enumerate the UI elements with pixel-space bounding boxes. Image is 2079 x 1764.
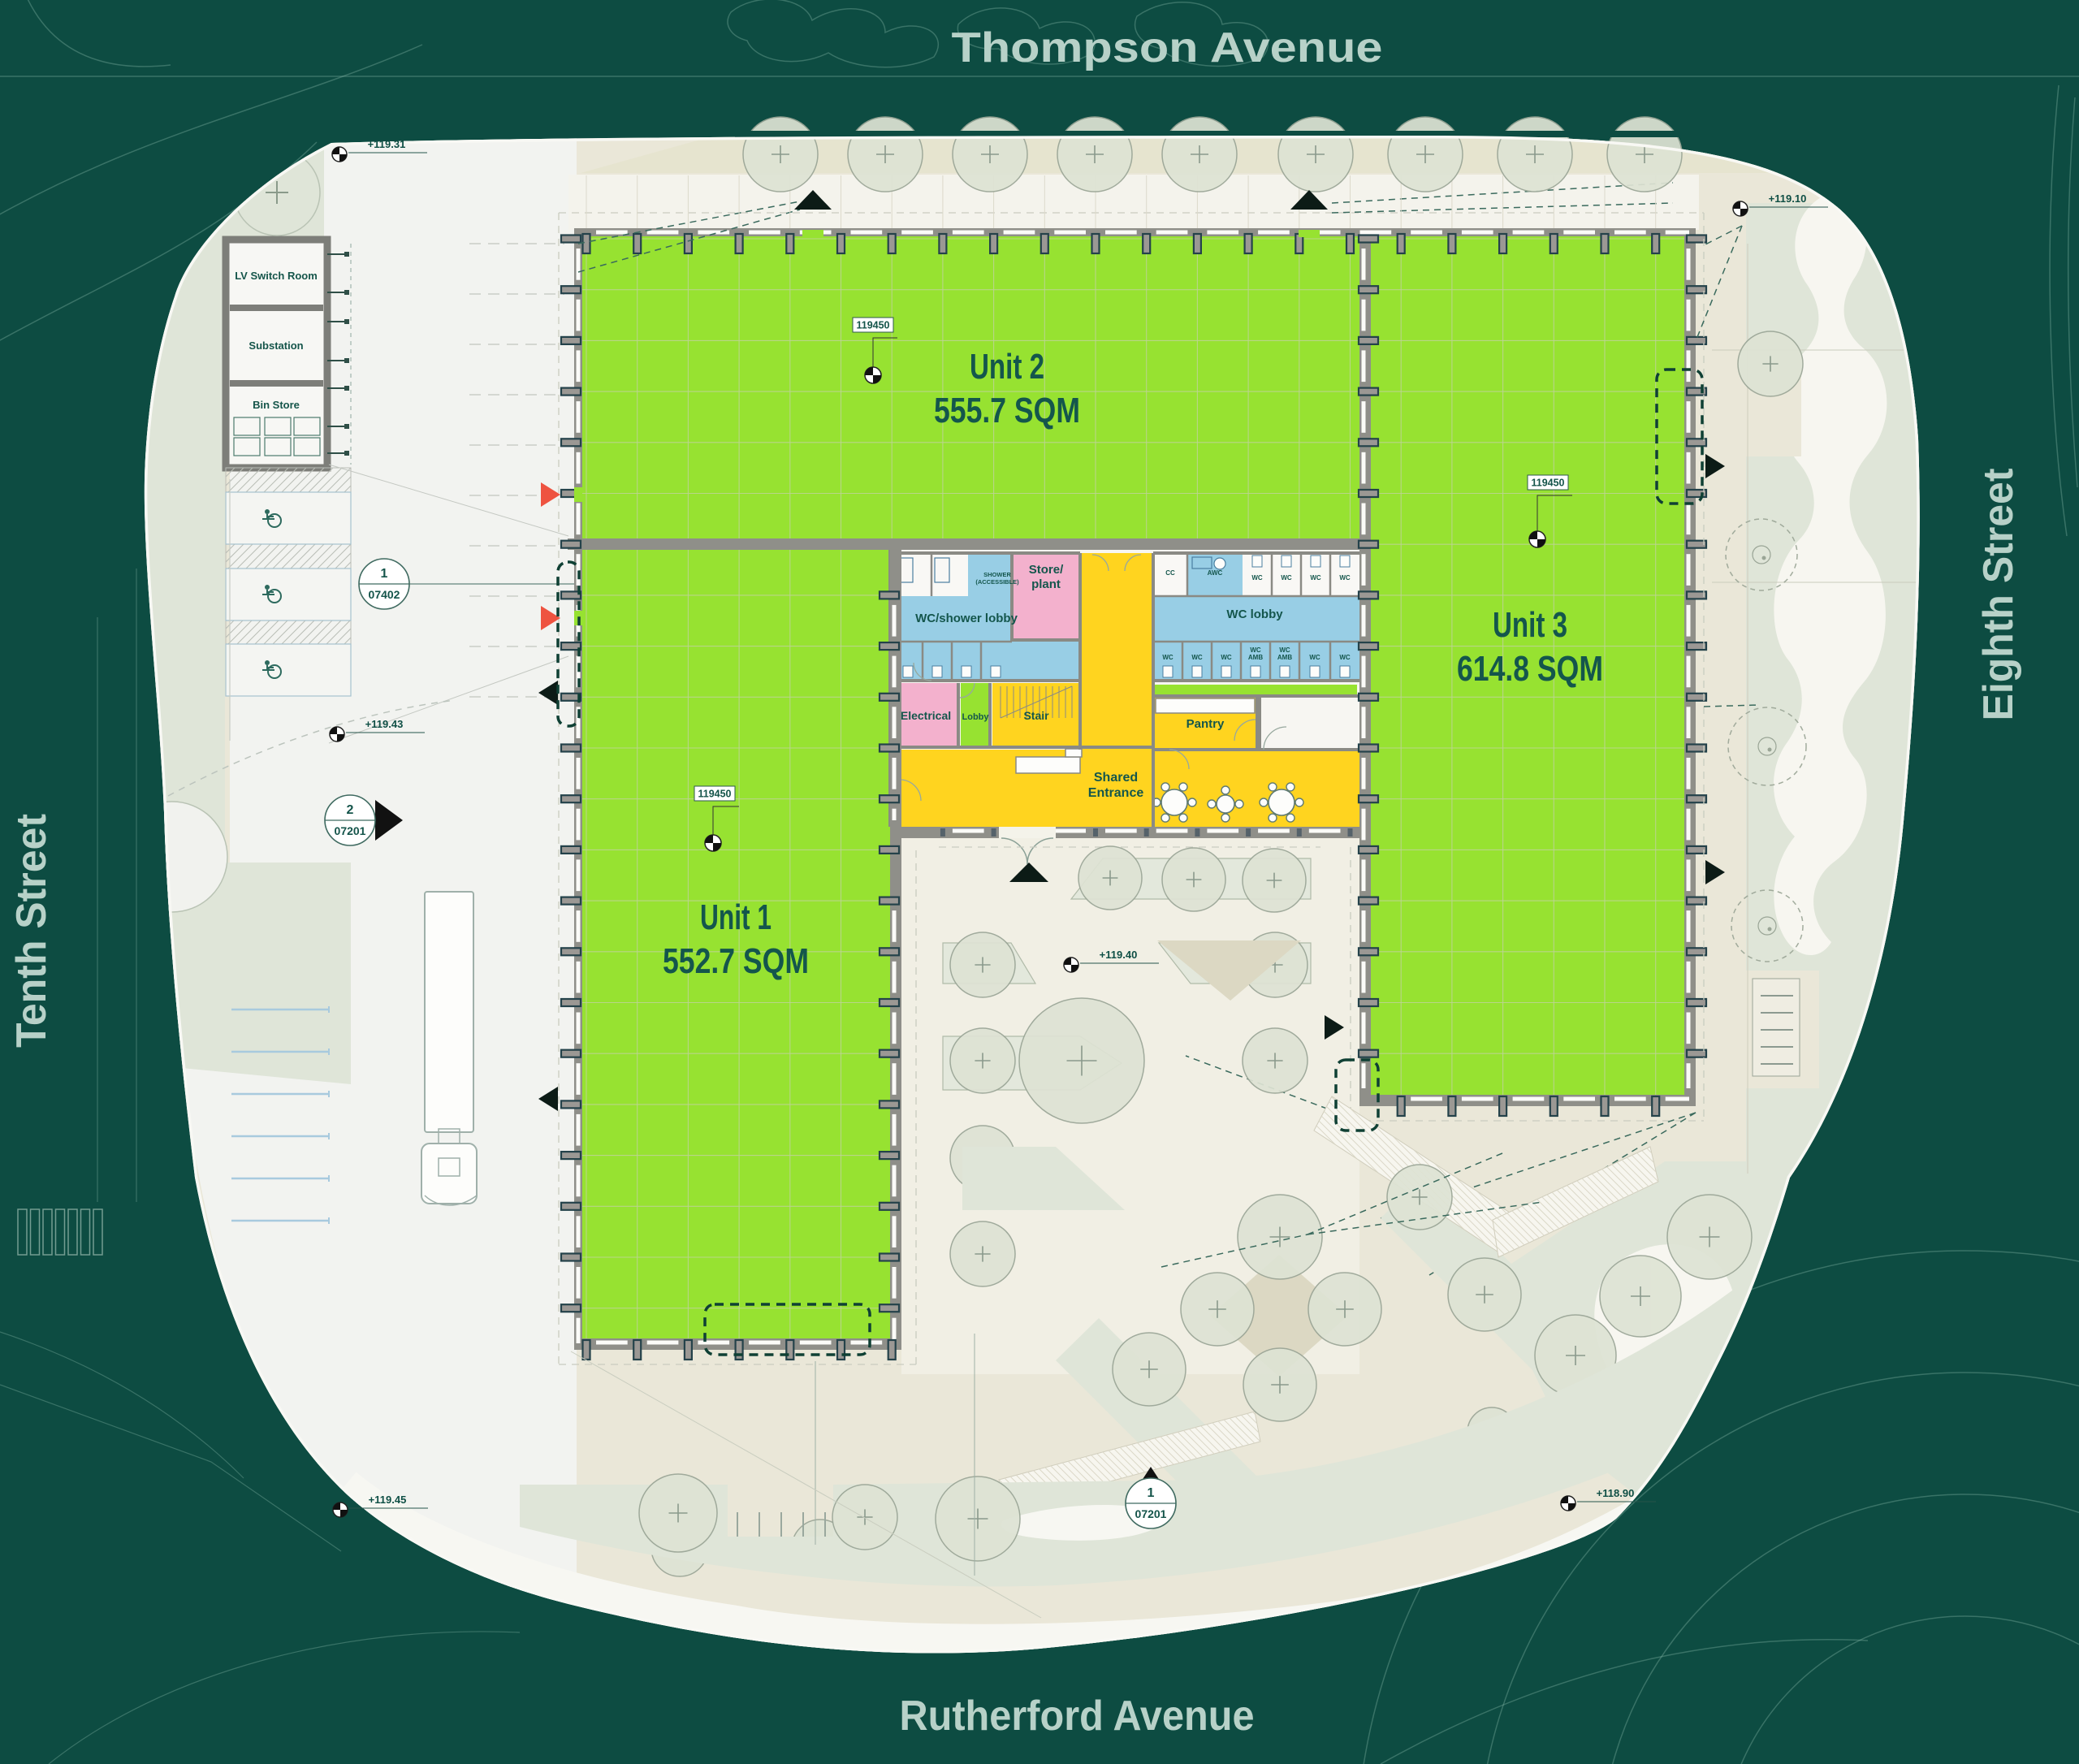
svg-text:WC/shower lobby: WC/shower lobby bbox=[915, 612, 1018, 625]
svg-text:Unit 2: Unit 2 bbox=[970, 347, 1044, 387]
svg-text:Pantry: Pantry bbox=[1186, 717, 1225, 731]
svg-text:Bin Store: Bin Store bbox=[253, 399, 300, 411]
svg-text:Shared: Shared bbox=[1094, 771, 1138, 785]
svg-text:07402: 07402 bbox=[369, 588, 400, 601]
svg-text:WC lobby: WC lobby bbox=[1226, 607, 1283, 621]
svg-text:AWC: AWC bbox=[1208, 569, 1223, 577]
svg-text:Eighth Street: Eighth Street bbox=[1975, 469, 2022, 721]
svg-text:552.7 SQM: 552.7 SQM bbox=[663, 941, 809, 981]
svg-text:+119.43: +119.43 bbox=[365, 718, 404, 730]
svg-text:WC: WC bbox=[1310, 574, 1321, 582]
svg-text:CC: CC bbox=[1165, 569, 1175, 577]
svg-text:WC: WC bbox=[1221, 654, 1232, 661]
svg-text:119450: 119450 bbox=[856, 320, 889, 331]
svg-text:07201: 07201 bbox=[335, 824, 366, 837]
svg-text:+118.90: +118.90 bbox=[1597, 1487, 1635, 1499]
svg-text:WC: WC bbox=[1162, 654, 1173, 661]
svg-text:Substation: Substation bbox=[249, 339, 303, 352]
svg-text:+119.10: +119.10 bbox=[1769, 192, 1807, 205]
svg-text:Lobby: Lobby bbox=[962, 712, 990, 722]
svg-text:WC: WC bbox=[1309, 654, 1320, 661]
svg-text:Entrance: Entrance bbox=[1088, 786, 1144, 800]
svg-text:+119.45: +119.45 bbox=[369, 1494, 407, 1506]
svg-text:2: 2 bbox=[347, 803, 354, 817]
svg-text:(ACCESSIBLE): (ACCESSIBLE) bbox=[975, 578, 1019, 586]
svg-text:WC: WC bbox=[1251, 574, 1263, 582]
svg-text:WC: WC bbox=[1250, 646, 1261, 654]
svg-text:WC: WC bbox=[1339, 654, 1351, 661]
svg-text:WC: WC bbox=[1281, 574, 1292, 582]
svg-text:plant: plant bbox=[1031, 577, 1061, 591]
svg-text:+119.31: +119.31 bbox=[368, 138, 406, 150]
svg-text:119450: 119450 bbox=[698, 789, 731, 800]
svg-text:WC: WC bbox=[1279, 646, 1290, 654]
svg-text:Electrical: Electrical bbox=[901, 709, 951, 722]
svg-text:1: 1 bbox=[1148, 1486, 1155, 1500]
svg-text:Unit 1: Unit 1 bbox=[700, 897, 772, 937]
svg-text:614.8 SQM: 614.8 SQM bbox=[1457, 649, 1603, 689]
svg-text:Tenth Street: Tenth Street bbox=[8, 814, 55, 1048]
svg-text:Unit 3: Unit 3 bbox=[1493, 605, 1567, 645]
svg-text:Thompson Avenue: Thompson Avenue bbox=[952, 24, 1383, 71]
svg-text:AMB: AMB bbox=[1277, 654, 1292, 661]
svg-text:555.7 SQM: 555.7 SQM bbox=[934, 391, 1080, 430]
svg-text:Store/: Store/ bbox=[1029, 563, 1064, 577]
svg-text:119450: 119450 bbox=[1531, 478, 1564, 489]
svg-text:LV Switch Room: LV Switch Room bbox=[235, 270, 318, 282]
svg-text:07201: 07201 bbox=[1135, 1507, 1167, 1520]
svg-text:Stair: Stair bbox=[1023, 709, 1049, 722]
svg-text:Rutherford Avenue: Rutherford Avenue bbox=[900, 1693, 1255, 1740]
svg-text:AMB: AMB bbox=[1248, 654, 1263, 661]
svg-text:SHOWER: SHOWER bbox=[983, 571, 1011, 578]
svg-text:WC: WC bbox=[1339, 574, 1351, 582]
svg-text:+119.40: +119.40 bbox=[1100, 949, 1138, 961]
svg-text:WC: WC bbox=[1191, 654, 1203, 661]
svg-text:1: 1 bbox=[381, 567, 388, 581]
